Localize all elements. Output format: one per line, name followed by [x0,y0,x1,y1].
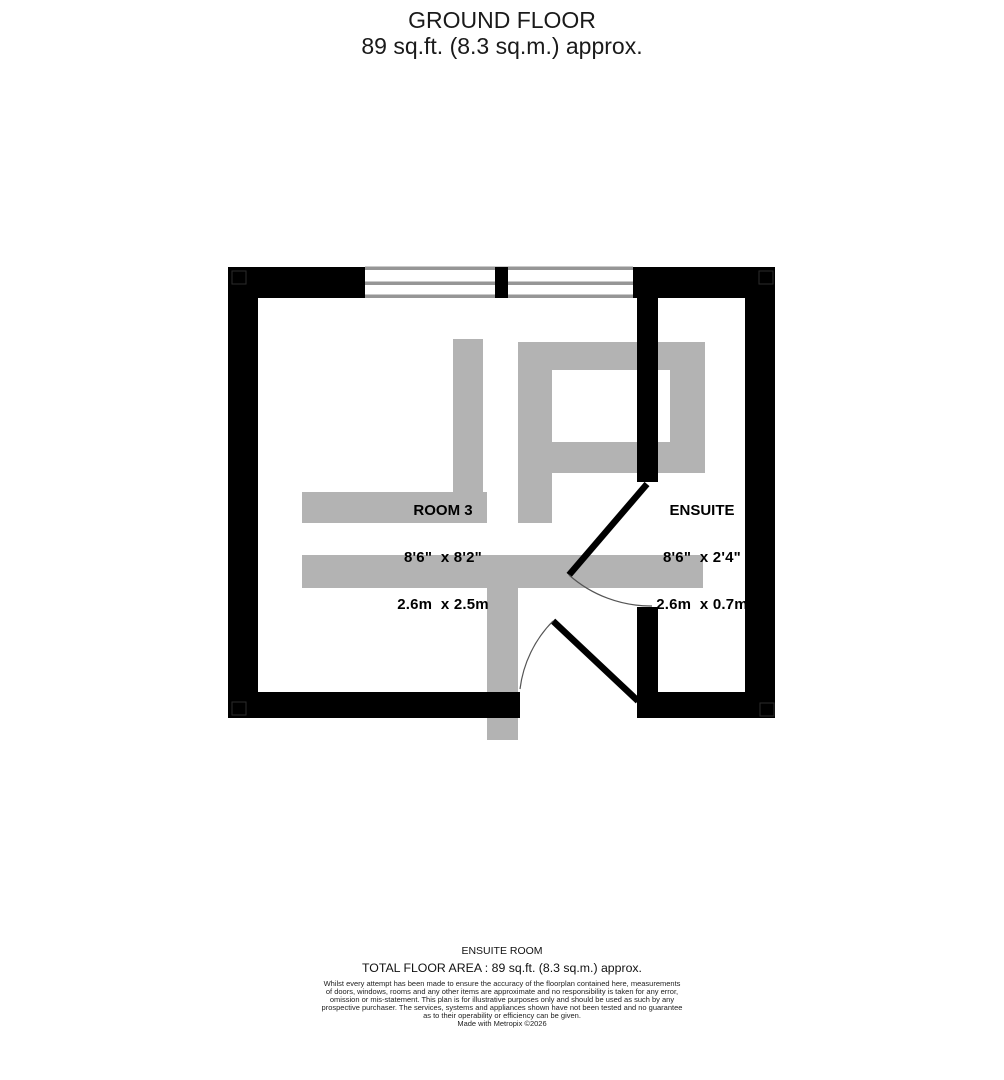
ensuite-name: ENSUITE [656,503,748,519]
disclaimer: Whilst every attempt has been made to en… [0,980,1004,1027]
room3-size-imperial: 8'6" x 8'2" [397,550,489,566]
wall-bottom-left [228,692,520,718]
floorplan-page: GROUND FLOOR 89 sq.ft. (8.3 sq.m.) appro… [0,0,1004,1080]
ensuite-size-metric: 2.6m x 0.7m [656,597,748,613]
entrance-door-swing-arc [520,621,553,689]
entrance-door-leaf [553,621,638,701]
furniture-long-bar [302,555,703,588]
wall-left [228,267,258,718]
total-floor-area: TOTAL FLOOR AREA : 89 sq.ft. (8.3 sq.m.)… [0,961,1004,975]
room3-size-metric: 2.6m x 2.5m [397,597,489,613]
room3-name: ROOM 3 [397,503,489,519]
window-pier [495,267,508,298]
property-name: ENSUITE ROOM [0,945,1004,957]
wall-right [745,267,775,718]
room-label-room3: ROOM 3 8'6" x 8'2" 2.6m x 2.5m [397,471,489,645]
wall-partition-upper [637,298,658,482]
floorplan-drawing [0,0,1004,1080]
room-label-ensuite: ENSUITE 8'6" x 2'4" 2.6m x 0.7m [656,471,748,645]
ensuite-size-imperial: 8'6" x 2'4" [656,550,748,566]
wall-partition-lower [637,607,658,718]
metropix-credit: Made with Metropix ©2026 [0,1020,1004,1028]
furniture-block-stem [518,473,552,523]
